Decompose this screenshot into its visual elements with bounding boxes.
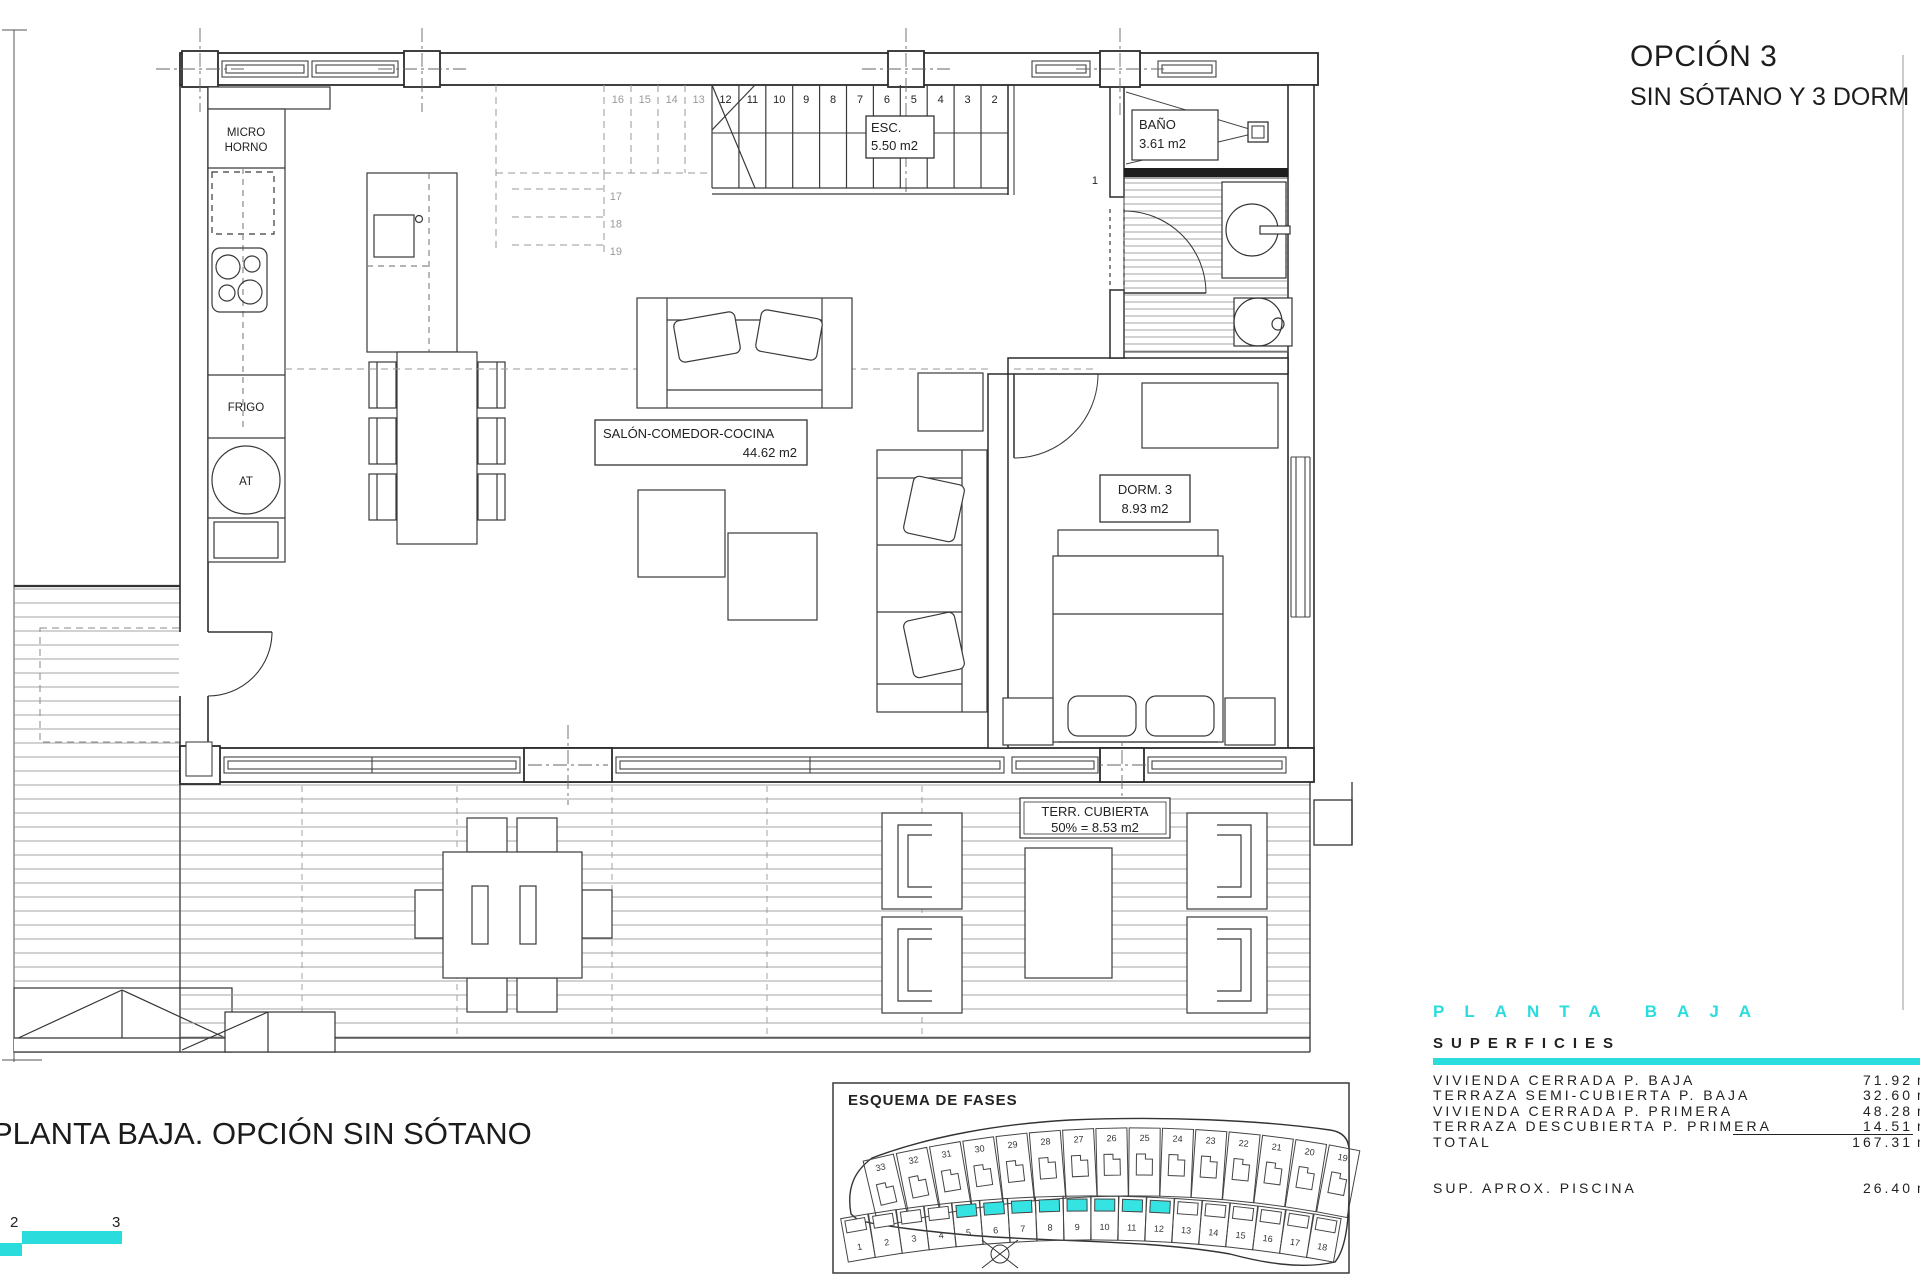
stair-numbers: 2345678910111213141516171819 [610, 94, 998, 258]
site-plot-number: 26 [1106, 1133, 1116, 1143]
site-plot-number: 20 [1304, 1146, 1315, 1157]
stair-tread-number: 16 [612, 94, 624, 106]
pillars [156, 28, 1164, 805]
terrace-area: 50% = 8.53 m2 [1051, 820, 1139, 835]
site-plot-number: 23 [1205, 1135, 1216, 1146]
bathroom-label: BAÑO [1139, 117, 1176, 132]
site-plot-number: 7 [1020, 1224, 1026, 1234]
surface-row-value: 32.60 [1733, 1087, 1913, 1103]
house-footprint-icon [1288, 1213, 1310, 1228]
nightstand-icon [1225, 698, 1275, 745]
house-footprint-icon [900, 1210, 921, 1225]
house-footprint-highlighted [956, 1204, 977, 1218]
stair-tread-number: 7 [857, 94, 863, 106]
living-label-box: SALÓN-COMEDOR-COCINA 44.62 m2 [595, 420, 807, 465]
surface-row-value: 167.31 [1733, 1134, 1913, 1150]
kitchen-island [367, 173, 457, 352]
site-plot-number: 32 [908, 1154, 920, 1166]
coffee-table-icon [638, 490, 725, 577]
surfaces-heading: PLANTA BAJA [1433, 1002, 1920, 1022]
graphic-scale: 2 3 [0, 1214, 200, 1264]
living-room [637, 298, 987, 712]
scale-segment [0, 1243, 22, 1256]
kitchen: MICRO HORNO FRIGO AT [208, 87, 330, 562]
site-plot-number: 17 [1289, 1237, 1300, 1248]
stair-first-step: 1 [1092, 175, 1098, 187]
pillow-icon [1146, 696, 1214, 736]
surface-row: TOTAL167.31m2 [1433, 1134, 1920, 1149]
stair-tread-number: 4 [938, 94, 944, 106]
site-plot-number: 15 [1235, 1230, 1246, 1241]
kitchen-label-at: AT [239, 476, 253, 488]
house-footprint-highlighted [1039, 1199, 1059, 1212]
surface-row-label: SUP. APROX. PISCINA [1433, 1180, 1637, 1196]
site-plot-number: 13 [1181, 1225, 1192, 1236]
surface-row: VIVIENDA CERRADA P. PRIMERA48.28m2 [1433, 1103, 1920, 1118]
stair-tread-number: 9 [803, 94, 809, 106]
house-footprint-highlighted [1150, 1200, 1171, 1213]
surface-row: VIVIENDA CERRADA P. BAJA71.92m2 [1433, 1072, 1920, 1087]
stair-tread-number: 14 [666, 94, 678, 106]
site-plot-number: 30 [974, 1143, 985, 1154]
bedroom-area: 8.93 m2 [1122, 501, 1169, 516]
scale-label: 3 [112, 1214, 120, 1231]
stair-tread-number: 15 [639, 94, 651, 106]
scale-label: 2 [10, 1214, 18, 1231]
site-plot-number: 24 [1172, 1134, 1182, 1144]
accent-divider [1433, 1058, 1920, 1065]
stair-tread-number: 11 [747, 94, 758, 106]
surface-row: TERRAZA DESCUBIERTA P. PRIMERA14.51m2 [1433, 1118, 1920, 1133]
stair-tread-number: 19 [610, 246, 622, 258]
kitchen-label-frigo: FRIGO [228, 402, 264, 414]
surface-row: TERRAZA SEMI-CUBIERTA P. BAJA32.60m2 [1433, 1087, 1920, 1102]
site-plot-number: 5 [965, 1227, 971, 1237]
site-plot-number: 22 [1238, 1138, 1249, 1149]
living-area: 44.62 m2 [743, 445, 797, 460]
bathroom: BAÑO 3.61 m2 [1124, 92, 1292, 352]
kitchen-label-micro: MICRO [227, 127, 265, 139]
page-title: OPCIÓN 3 [1630, 40, 1920, 74]
stairs-area: 5.50 m2 [871, 138, 918, 153]
surfaces-subheading: SUPERFICIES [1433, 1035, 1920, 1052]
stair-tread-number: 18 [610, 219, 622, 231]
sofa-icon-2 [877, 450, 987, 712]
site-plot-number: 29 [1007, 1139, 1018, 1150]
house-footprint-icon [1205, 1204, 1226, 1218]
kitchen-label-horno: HORNO [225, 142, 268, 154]
stairs-label: ESC. [871, 120, 901, 135]
coffee-table-icon [728, 533, 817, 620]
site-plot-number: 25 [1140, 1133, 1150, 1143]
site-plan-title: ESQUEMA DE FASES [848, 1092, 1018, 1109]
site-plot-number: 16 [1262, 1233, 1273, 1244]
site-plan: ESQUEMA DE FASES 33323130292827262524232… [833, 1083, 1360, 1273]
surface-row-label: VIVIENDA CERRADA P. PRIMERA [1433, 1103, 1733, 1119]
tv-cabinet-icon [918, 373, 983, 431]
site-plot-number: 10 [1099, 1222, 1109, 1232]
surfaces-rows: VIVIENDA CERRADA P. BAJA71.92m2TERRAZA S… [1433, 1072, 1920, 1195]
site-plot-number: 14 [1208, 1227, 1219, 1238]
stair-tread-number: 8 [830, 94, 836, 106]
house-footprint-icon [1260, 1210, 1281, 1225]
plan-caption: PLANTA BAJA. OPCIÓN SIN SÓTANO [0, 1116, 532, 1152]
tap-icon [1260, 226, 1290, 234]
surface-row-value: 48.28 [1733, 1103, 1913, 1119]
house-footprint-icon [873, 1213, 895, 1228]
bath-divider-wall [1124, 168, 1288, 177]
outdoor-table-icon [1025, 848, 1112, 978]
title-block: OPCIÓN 3 SIN SÓTANO Y 3 DORM [1630, 40, 1920, 112]
site-plot-number: 9 [1075, 1222, 1080, 1232]
sofa-icon [637, 298, 852, 408]
house-footprint-highlighted [1095, 1199, 1115, 1211]
stair-tread-number: 5 [911, 94, 917, 106]
site-plot-number: 27 [1073, 1134, 1084, 1144]
stair-tread-number: 12 [719, 94, 731, 106]
house-footprint-highlighted [1067, 1199, 1087, 1211]
site-plot-number: 28 [1040, 1136, 1051, 1147]
sink-icon [374, 215, 414, 257]
stair-tread-number: 17 [610, 191, 622, 203]
wardrobe-icon [1142, 383, 1278, 448]
pillow-icon [1068, 696, 1136, 736]
scale-segment [22, 1231, 122, 1244]
surface-row-label: TOTAL [1433, 1134, 1492, 1150]
house-footprint-icon [1177, 1202, 1198, 1215]
house-footprint-highlighted [1011, 1200, 1032, 1213]
site-plot-number: 18 [1316, 1241, 1328, 1253]
living-label: SALÓN-COMEDOR-COCINA [603, 426, 775, 441]
terrace-label-box: TERR. CUBIERTA 50% = 8.53 m2 [1020, 798, 1170, 838]
site-plot-number: 6 [993, 1225, 999, 1235]
nightstand-icon [1003, 698, 1053, 745]
surface-row-label: TERRAZA SEMI-CUBIERTA P. BAJA [1433, 1087, 1750, 1103]
stair-tread-number: 3 [965, 94, 971, 106]
bathroom-area: 3.61 m2 [1139, 136, 1186, 151]
house-footprint-icon [1232, 1206, 1253, 1220]
bedroom [1003, 374, 1278, 745]
terrace-label: TERR. CUBIERTA [1041, 804, 1148, 819]
bed-icon [1053, 530, 1223, 742]
surface-row-value: 26.40 [1733, 1180, 1913, 1196]
bedroom-door-icon [1014, 374, 1098, 458]
house-footprint-highlighted [984, 1202, 1005, 1215]
site-plot-number: 19 [1337, 1152, 1349, 1164]
house-footprint-icon [928, 1206, 949, 1220]
site-plot-number: 11 [1127, 1222, 1137, 1232]
bedroom-label-box: DORM. 3 8.93 m2 [1100, 475, 1190, 522]
surface-row: SUP. APROX. PISCINA26.40m2 [1433, 1180, 1920, 1195]
site-plot-number: 12 [1154, 1223, 1165, 1234]
surface-row-value: 71.92 [1733, 1072, 1913, 1088]
stair-tread-number: 6 [884, 94, 890, 106]
surface-row-label: VIVIENDA CERRADA P. BAJA [1433, 1072, 1695, 1088]
bedroom-label: DORM. 3 [1118, 482, 1172, 497]
surface-row-label: TERRAZA DESCUBIERTA P. PRIMERA [1433, 1118, 1772, 1134]
site-plot-number: 31 [941, 1148, 953, 1160]
site-plot-number: 8 [1047, 1223, 1052, 1233]
page-subtitle: SIN SÓTANO Y 3 DORM [1630, 83, 1920, 112]
house-footprint-highlighted [1122, 1199, 1142, 1212]
site-plot-number: 21 [1271, 1142, 1282, 1153]
surfaces-table: PLANTA BAJA SUPERFICIES VIVIENDA CERRADA… [1433, 1002, 1920, 1195]
stair-tread-number: 13 [692, 94, 704, 106]
dining-set [369, 352, 505, 544]
stair-tread-number: 10 [773, 94, 785, 106]
stair-tread-number: 2 [991, 94, 997, 106]
